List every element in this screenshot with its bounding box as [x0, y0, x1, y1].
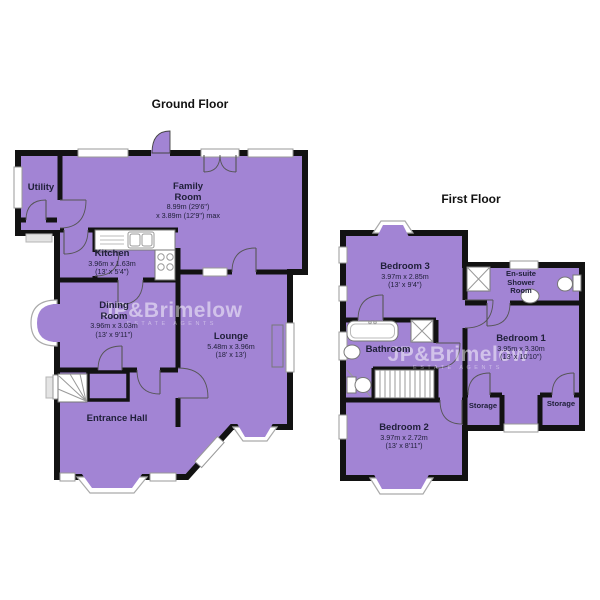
- hall-window: [60, 473, 75, 481]
- bathtub-icon: [347, 321, 398, 341]
- family-room-window: [78, 149, 128, 157]
- lounge-bay-window: [233, 420, 277, 441]
- floorplan-canvas: Ground Floor First Floor JP&Brimelow EST…: [0, 0, 600, 600]
- dining-bow-window: [31, 300, 61, 346]
- bathroom-shower-icon: [411, 320, 433, 342]
- room-label-bedroom2: Bedroom 2 3.97m x 2.72m (13' x 8'11"): [379, 423, 429, 450]
- bedroom3-bay-window: [373, 221, 413, 237]
- room-label-bedroom1: Bedroom 1 3.95m x 3.30m (13' x 10'10"): [496, 334, 546, 361]
- hall-window: [150, 473, 176, 481]
- room-label-bathroom: Bathroom: [366, 345, 411, 356]
- bedroom3-window: [339, 286, 347, 301]
- ground-floor-title: Ground Floor: [152, 97, 229, 111]
- serving-hatch-window: [203, 268, 227, 276]
- room-label-dining-room: Dining Room 3.96m x 3.03m (13' x 9'11"): [90, 301, 138, 339]
- back-door-leaf: [152, 131, 170, 153]
- hall-bay-window: [77, 470, 147, 493]
- first-floor-title: First Floor: [441, 192, 500, 206]
- bedroom2-bay-window: [370, 471, 433, 494]
- utility-window: [14, 167, 22, 208]
- ensuite-window: [510, 261, 538, 269]
- room-label-storage-left: Storage: [469, 402, 497, 411]
- bathroom-sink-icon: [344, 345, 360, 359]
- floorplan-drawing: [0, 0, 600, 600]
- room-label-entrance-hall: Entrance Hall: [86, 414, 148, 425]
- bedroom3-window: [339, 247, 347, 263]
- room-label-lounge: Lounge 5.48m x 3.96m (18' x 13'): [207, 332, 255, 359]
- ensuite-shower-icon: [467, 267, 490, 291]
- bathroom-toilet-icon: [347, 377, 371, 393]
- landing-window: [504, 424, 538, 432]
- room-label-kitchen: Kitchen 3.96m x 1.63m (13' x 5'4"): [88, 249, 136, 276]
- room-label-storage-right: Storage: [547, 400, 575, 409]
- room-label-bedroom3: Bedroom 3 3.97m x 2.85m (13' x 9'4"): [380, 262, 430, 289]
- bedroom2-window: [339, 415, 347, 439]
- lounge-window: [286, 323, 294, 372]
- room-label-family-room: Family Room 8.99m (29'6") x 3.89m (12'9"…: [156, 182, 220, 220]
- back-step: [26, 234, 52, 242]
- room-label-ensuite: En-suite Shower Room: [499, 270, 543, 296]
- room-label-utility: Utility: [28, 183, 54, 194]
- family-room-window: [248, 149, 293, 157]
- ground-stairs-icon: [58, 374, 87, 402]
